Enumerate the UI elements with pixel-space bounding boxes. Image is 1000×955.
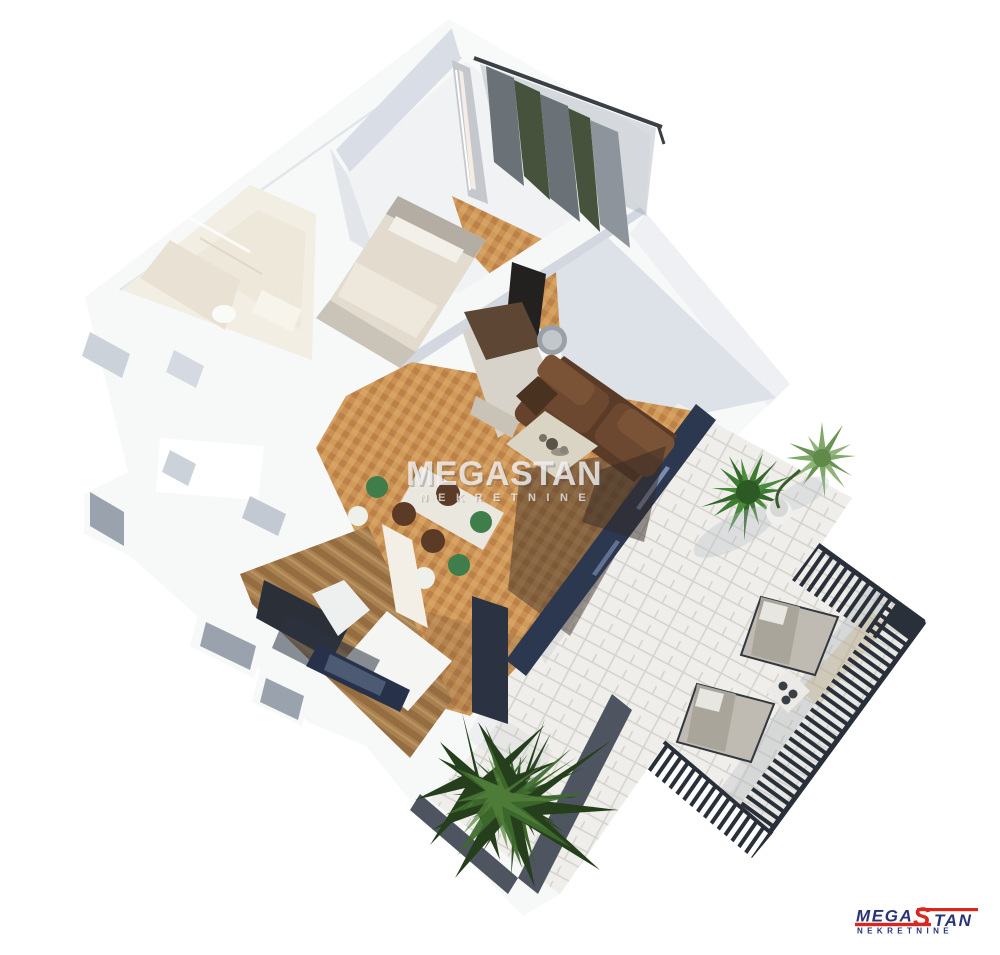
svg-text:NEKRETNINE: NEKRETNINE [420, 492, 597, 504]
svg-text:MEGASTAN: MEGASTAN [406, 455, 602, 493]
svg-text:NEKRETNINE: NEKRETNINE [857, 927, 953, 936]
svg-text:MEGA: MEGA [856, 907, 913, 926]
